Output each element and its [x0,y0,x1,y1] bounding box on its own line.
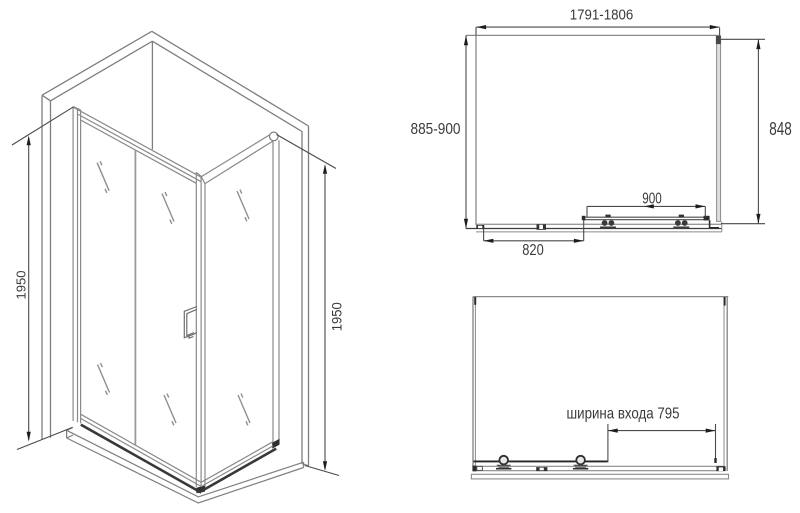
svg-text:1791-1806: 1791-1806 [570,7,634,23]
svg-text:820: 820 [522,242,544,259]
svg-text:885-900: 885-900 [411,121,461,138]
svg-text:1950: 1950 [14,271,29,300]
svg-text:848: 848 [769,119,792,139]
svg-text:900: 900 [642,191,662,208]
svg-text:ширина входа 795: ширина входа 795 [567,405,680,422]
svg-text:1950: 1950 [329,302,345,331]
